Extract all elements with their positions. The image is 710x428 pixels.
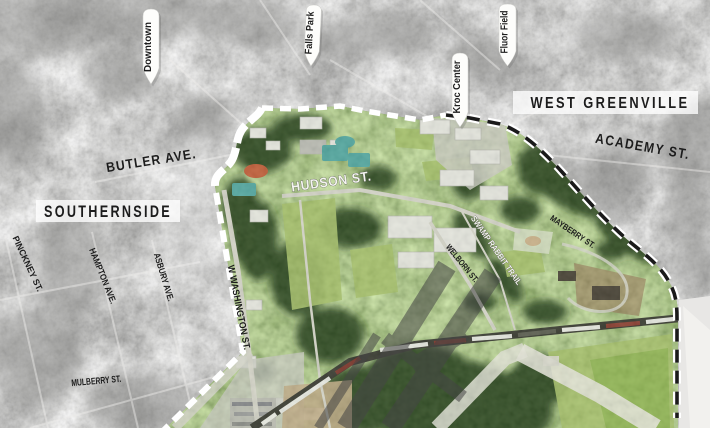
svg-text:Falls Park: Falls Park: [304, 11, 317, 55]
svg-text:Downtown: Downtown: [142, 22, 154, 72]
svg-text:Kroc Center: Kroc Center: [452, 60, 463, 113]
svg-text:SOUTHERNSIDE: SOUTHERNSIDE: [44, 203, 172, 221]
svg-text:Fluor Field: Fluor Field: [500, 11, 511, 54]
svg-text:WEST GREENVILLE: WEST GREENVILLE: [531, 95, 690, 112]
